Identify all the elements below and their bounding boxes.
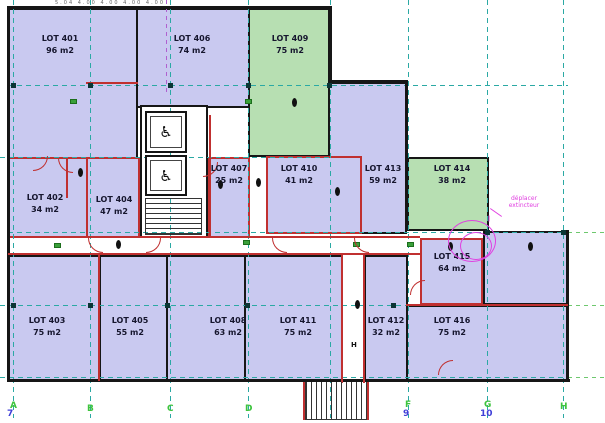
annotation-arrow	[490, 208, 502, 217]
annotation-text: déplacer extincteur	[498, 195, 550, 209]
floor-plan: ♿ ♿	[0, 0, 605, 423]
annotation-arrowhead	[489, 216, 490, 222]
revision-cloud-inner	[460, 232, 492, 260]
annotation-layer: déplacer extincteur	[0, 0, 605, 423]
